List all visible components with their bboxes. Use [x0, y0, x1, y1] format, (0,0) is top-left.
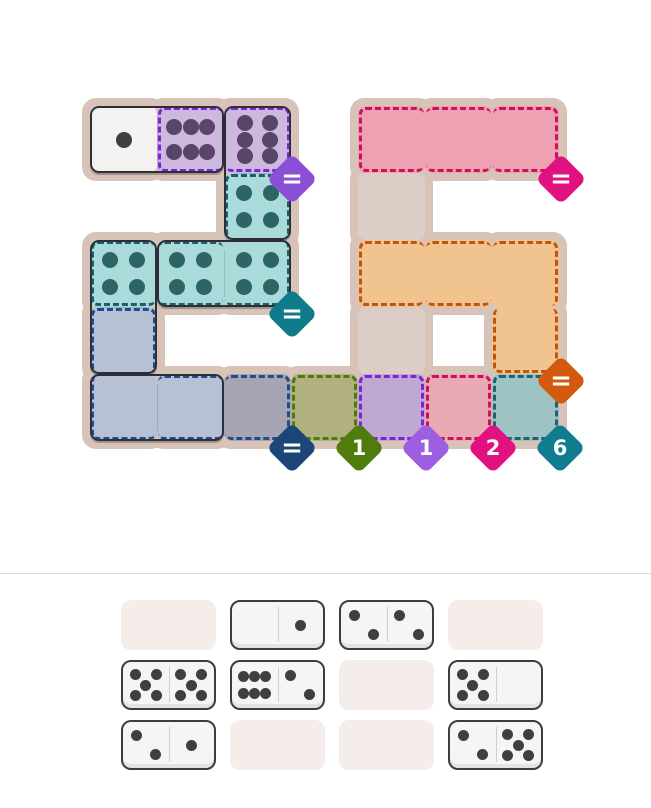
game-screen: =====1126 [0, 0, 651, 808]
board-cell-r2c6[interactable] [492, 240, 559, 307]
pip [260, 688, 271, 699]
pip [236, 212, 252, 228]
pip [458, 730, 469, 741]
tray-domino-2-2[interactable] [339, 600, 434, 650]
pip [523, 750, 534, 761]
region-border [426, 107, 491, 172]
pip [237, 132, 253, 148]
board-cell-r2c5[interactable] [425, 240, 492, 307]
pip [502, 729, 513, 740]
badge-label: = [543, 363, 579, 399]
pip [175, 690, 186, 701]
board-cell-r3c4[interactable] [358, 307, 425, 374]
pip [262, 115, 278, 131]
region-border [91, 308, 156, 373]
pip [260, 671, 271, 682]
pip [129, 252, 145, 268]
pip [169, 252, 185, 268]
pip [249, 688, 260, 699]
pip [513, 740, 524, 751]
badge-label: 6 [542, 430, 578, 466]
board-cell-r0c0[interactable] [90, 106, 157, 173]
board-cell-r0c1[interactable] [157, 106, 224, 173]
pip [237, 148, 253, 164]
badge-label: 1 [408, 430, 444, 466]
domino-half-right [169, 662, 215, 708]
domino-half-right [496, 662, 542, 708]
tray-slot-empty [339, 720, 434, 770]
tray-domino-6-2[interactable] [230, 660, 325, 710]
badge-label: = [543, 161, 579, 197]
pip [394, 610, 405, 621]
pip [523, 729, 534, 740]
region-border [359, 107, 424, 172]
pip [295, 620, 306, 631]
pip [249, 671, 260, 682]
region-border [426, 241, 491, 306]
pip [236, 279, 252, 295]
board-cell-r0c4[interactable] [358, 106, 425, 173]
tray-domino-5-5[interactable] [121, 660, 216, 710]
pip [237, 115, 253, 131]
pip [166, 144, 182, 160]
tray-domino-5-0[interactable] [448, 660, 543, 710]
region-border [158, 241, 223, 306]
domino-half-right [387, 602, 433, 648]
pip [368, 629, 379, 640]
pip [349, 610, 360, 621]
pip [196, 669, 207, 680]
pip [131, 730, 142, 741]
pip [130, 669, 141, 680]
region-border [91, 241, 156, 306]
pip [116, 132, 132, 148]
pip [102, 279, 118, 295]
region-border [158, 375, 223, 440]
badge-label: = [274, 430, 310, 466]
badge-label: = [274, 161, 310, 197]
pip [236, 252, 252, 268]
badge-teal-equals: = [267, 289, 318, 340]
pip [102, 252, 118, 268]
pip [502, 750, 513, 761]
pip [129, 279, 145, 295]
region-border [359, 241, 424, 306]
pip [413, 629, 424, 640]
board-cell-r2c1[interactable] [157, 240, 224, 307]
domino-half-right [496, 722, 542, 768]
pip [238, 688, 249, 699]
pip [140, 680, 151, 691]
pip [285, 670, 296, 681]
pip [262, 132, 278, 148]
pip [150, 749, 161, 760]
region-border [493, 241, 558, 306]
board-cell-r1c4[interactable] [358, 173, 425, 240]
board-cell-r0c5[interactable] [425, 106, 492, 173]
pip [263, 279, 279, 295]
tray-domino-2-1[interactable] [121, 720, 216, 770]
pip [236, 185, 252, 201]
board-cell-r2c4[interactable] [358, 240, 425, 307]
domino-half-left [450, 722, 496, 768]
domino-half-left [341, 602, 387, 648]
pip [196, 690, 207, 701]
pip [457, 669, 468, 680]
pip [130, 690, 141, 701]
pip [199, 144, 215, 160]
board-cell-r2c0[interactable] [90, 240, 157, 307]
pip [186, 680, 197, 691]
badge-pink-equals: = [536, 154, 587, 205]
pip [199, 119, 215, 135]
domino-half-left [123, 722, 169, 768]
badge-teal-six: 6 [535, 423, 586, 474]
tray-slot-empty [448, 600, 543, 650]
pip [183, 119, 199, 135]
tray-domino-0-1[interactable] [230, 600, 325, 650]
tray-slot-empty [230, 720, 325, 770]
pip [477, 749, 488, 760]
badge-purple-equals: = [267, 154, 318, 205]
pip [196, 279, 212, 295]
badge-olive-one: 1 [334, 423, 385, 474]
tray-slot-empty [121, 600, 216, 650]
pip [478, 669, 489, 680]
badge-pink-two: 2 [468, 423, 519, 474]
pip [169, 279, 185, 295]
region-border [91, 375, 156, 440]
pip [238, 671, 249, 682]
pip [457, 690, 468, 701]
tray-slot-empty [339, 660, 434, 710]
badge-orange-equals: = [536, 356, 587, 407]
domino-half-right [278, 662, 324, 708]
board-cell-r3c0[interactable] [90, 307, 157, 374]
domino-half-right [278, 602, 324, 648]
pip [304, 689, 315, 700]
pip [151, 690, 162, 701]
pip [151, 669, 162, 680]
badge-label: 2 [475, 430, 511, 466]
domino-half-left [232, 602, 278, 648]
badge-purple-one: 1 [401, 423, 452, 474]
domino-half-left [450, 662, 496, 708]
badge-label: = [274, 296, 310, 332]
board-cell-r4c0[interactable] [90, 374, 157, 441]
tray-domino-2-5[interactable] [448, 720, 543, 770]
badge-navy-equals: = [267, 423, 318, 474]
board-cell-r4c1[interactable] [157, 374, 224, 441]
badge-label: 1 [341, 430, 377, 466]
pip [175, 669, 186, 680]
pip [196, 252, 212, 268]
pip [183, 144, 199, 160]
region-border [158, 107, 223, 172]
pip [166, 119, 182, 135]
domino-half-right [169, 722, 215, 768]
pip [263, 252, 279, 268]
pip [467, 680, 478, 691]
pip [186, 740, 197, 751]
pip [478, 690, 489, 701]
domino-half-left [123, 662, 169, 708]
domino-half-left [232, 662, 278, 708]
pip [263, 212, 279, 228]
